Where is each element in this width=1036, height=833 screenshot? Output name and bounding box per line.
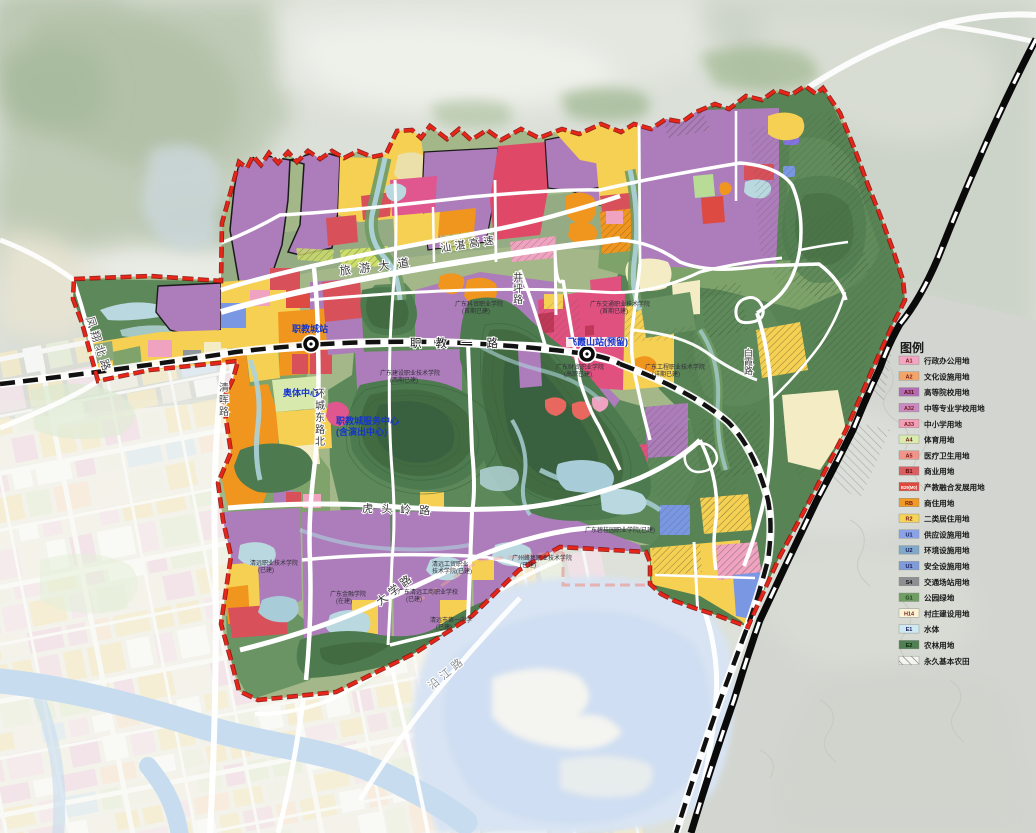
- svg-text:E1: E1: [906, 627, 913, 633]
- svg-text:A32: A32: [904, 406, 914, 412]
- svg-text:(已建): (已建): [436, 623, 452, 631]
- svg-text:A4: A4: [905, 438, 913, 444]
- svg-text:职教城站: 职教城站: [292, 323, 328, 334]
- svg-text:A2: A2: [905, 374, 912, 380]
- svg-text:广州峰隽职业技术学院: 广州峰隽职业技术学院: [512, 554, 572, 562]
- svg-text:技术学院(已建): 技术学院(已建): [432, 567, 472, 575]
- svg-text:G1: G1: [905, 596, 912, 602]
- svg-text:S4: S4: [906, 580, 914, 586]
- svg-text:环境设施用地: 环境设施用地: [924, 545, 970, 555]
- svg-text:B29(M0): B29(M0): [901, 485, 918, 490]
- svg-text:医疗卫生用地: 医疗卫生用地: [924, 450, 970, 460]
- svg-text:(在建): (在建): [336, 597, 352, 605]
- svg-text:(高职已建): (高职已建): [564, 370, 592, 378]
- svg-text:清晖路: 清晖路: [217, 381, 229, 418]
- svg-text:产教融合发展用地: 产教融合发展用地: [924, 482, 985, 492]
- svg-text:E2: E2: [906, 643, 913, 649]
- svg-text:清远职业技术学院: 清远职业技术学院: [250, 559, 298, 567]
- svg-text:高等院校用地: 高等院校用地: [924, 387, 970, 397]
- svg-text:职教一路: 职教一路: [410, 336, 512, 350]
- svg-text:广东金融学院: 广东金融学院: [330, 590, 366, 598]
- svg-text:(已建): (已建): [520, 561, 536, 569]
- svg-text:广东清远工商职业学校: 广东清远工商职业学校: [398, 588, 458, 596]
- svg-text:白霞路: 白霞路: [743, 347, 753, 376]
- svg-text:RB: RB: [905, 501, 913, 507]
- svg-text:(首期已建): (首期已建): [600, 307, 628, 315]
- svg-text:体育用地: 体育用地: [924, 435, 955, 445]
- svg-text:B1: B1: [905, 469, 912, 475]
- svg-text:A1: A1: [905, 359, 912, 365]
- svg-text:A33: A33: [904, 422, 914, 428]
- svg-text:图例: 图例: [900, 340, 924, 355]
- svg-text:清远工贸职业: 清远工贸职业: [432, 560, 468, 568]
- svg-text:U1: U1: [905, 564, 912, 570]
- svg-text:公园绿地: 公园绿地: [924, 593, 955, 603]
- svg-text:(已建): (已建): [258, 566, 274, 574]
- svg-text:(西期已建): (西期已建): [390, 376, 418, 384]
- svg-text:行政办公用地: 行政办公用地: [923, 356, 970, 366]
- svg-text:广东建设职业技术学院: 广东建设职业技术学院: [380, 369, 440, 377]
- svg-text:村庄建设用地: 村庄建设用地: [924, 608, 970, 618]
- svg-text:(含演出中心): (含演出中心): [336, 426, 387, 437]
- svg-text:农林用地: 农林用地: [923, 640, 955, 650]
- svg-text:广东碧桂园职业学院(已建): 广东碧桂园职业学院(已建): [585, 526, 655, 534]
- svg-text:供应设施用地: 供应设施用地: [923, 529, 970, 539]
- svg-text:奥体中心: 奥体中心: [282, 387, 319, 398]
- svg-text:(首期已建): (首期已建): [462, 307, 490, 315]
- svg-text:交通场站用地: 交通场站用地: [924, 577, 970, 587]
- svg-text:商业用地: 商业用地: [924, 466, 955, 476]
- svg-text:二类居住用地: 二类居住用地: [924, 514, 970, 524]
- svg-text:U2: U2: [905, 548, 912, 554]
- svg-text:中等专业学校用地: 中等专业学校用地: [924, 403, 985, 413]
- svg-text:飞霞山站(预留): 飞霞山站(预留): [568, 336, 628, 347]
- svg-text:广东交通职业技术学院: 广东交通职业技术学院: [590, 300, 650, 308]
- svg-text:A31: A31: [904, 390, 914, 396]
- svg-text:广东科贸职业学院: 广东科贸职业学院: [455, 300, 503, 308]
- svg-text:(已建): (已建): [406, 595, 422, 603]
- svg-text:广东工程职业技术学院: 广东工程职业技术学院: [645, 363, 705, 371]
- svg-text:文化设施用地: 文化设施用地: [924, 371, 970, 381]
- svg-text:中小学用地: 中小学用地: [924, 419, 962, 429]
- svg-text:安全设施用地: 安全设施用地: [924, 561, 970, 571]
- svg-text:水体: 水体: [924, 624, 940, 634]
- svg-text:井坪路: 井坪路: [511, 271, 523, 305]
- svg-text:广东财贸职业学院: 广东财贸职业学院: [556, 363, 604, 371]
- svg-text:(详期已建): (详期已建): [652, 370, 680, 378]
- svg-text:永久基本农田: 永久基本农田: [923, 656, 970, 666]
- svg-text:R2: R2: [905, 517, 912, 523]
- svg-text:职教城服务中心: 职教城服务中心: [336, 415, 399, 426]
- svg-text:U1: U1: [905, 532, 912, 538]
- svg-text:商住用地: 商住用地: [924, 498, 955, 508]
- svg-text:A5: A5: [905, 453, 912, 459]
- svg-text:清远市第一中学: 清远市第一中学: [430, 616, 472, 624]
- svg-text:H14: H14: [904, 611, 915, 617]
